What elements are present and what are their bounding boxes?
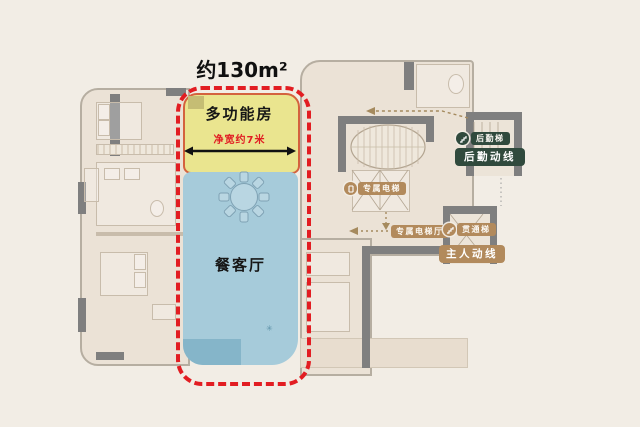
partition-wall: [96, 232, 184, 236]
drain-icon: ✳: [266, 324, 273, 333]
wall-segment: [404, 62, 414, 90]
private-elevator-badge: 专属电梯: [358, 182, 406, 195]
service-stairs-badge: 后勤梯: [471, 132, 510, 145]
width-note: 净宽约7米: [183, 131, 296, 146]
bathtub: [84, 168, 99, 202]
stairs-icon: [443, 223, 456, 236]
private-elevator-hall-badge: 专属电梯厅: [391, 225, 449, 238]
sink: [124, 168, 140, 180]
toilet: [150, 200, 164, 217]
pillow: [134, 254, 146, 270]
wall-segment: [78, 298, 86, 332]
pillow: [98, 104, 110, 120]
wardrobe: [96, 144, 174, 155]
dining-living-room-label: 餐客厅: [183, 254, 298, 275]
sink: [104, 168, 120, 180]
owner-route-label: 主人动线: [439, 245, 505, 263]
multi-function-room-label: 多功能房: [183, 103, 296, 124]
pillow: [98, 120, 110, 136]
desk: [306, 252, 350, 276]
wall-segment: [338, 116, 434, 124]
pillow: [134, 272, 146, 288]
wall-segment: [96, 352, 124, 360]
stairs-icon: [456, 132, 469, 145]
toilet: [448, 74, 464, 94]
balcony-strip: [183, 339, 241, 365]
elevator-icon: [344, 182, 357, 195]
floorplan-canvas: 多功能房 净宽约7米 餐客厅 ✳ 约130m² 后勤梯 后勤动线 专属电梯 专属…: [0, 0, 640, 427]
dresser: [152, 304, 176, 320]
wall-segment: [362, 246, 370, 368]
service-route-label: 后勤动线: [455, 148, 525, 166]
wall-segment: [426, 116, 434, 142]
bed: [306, 282, 350, 332]
wall-segment: [338, 116, 346, 172]
terrace-strip: [300, 338, 468, 368]
through-stairs-badge: 贯通梯: [457, 223, 496, 236]
area-title: 约130m²: [176, 54, 308, 83]
